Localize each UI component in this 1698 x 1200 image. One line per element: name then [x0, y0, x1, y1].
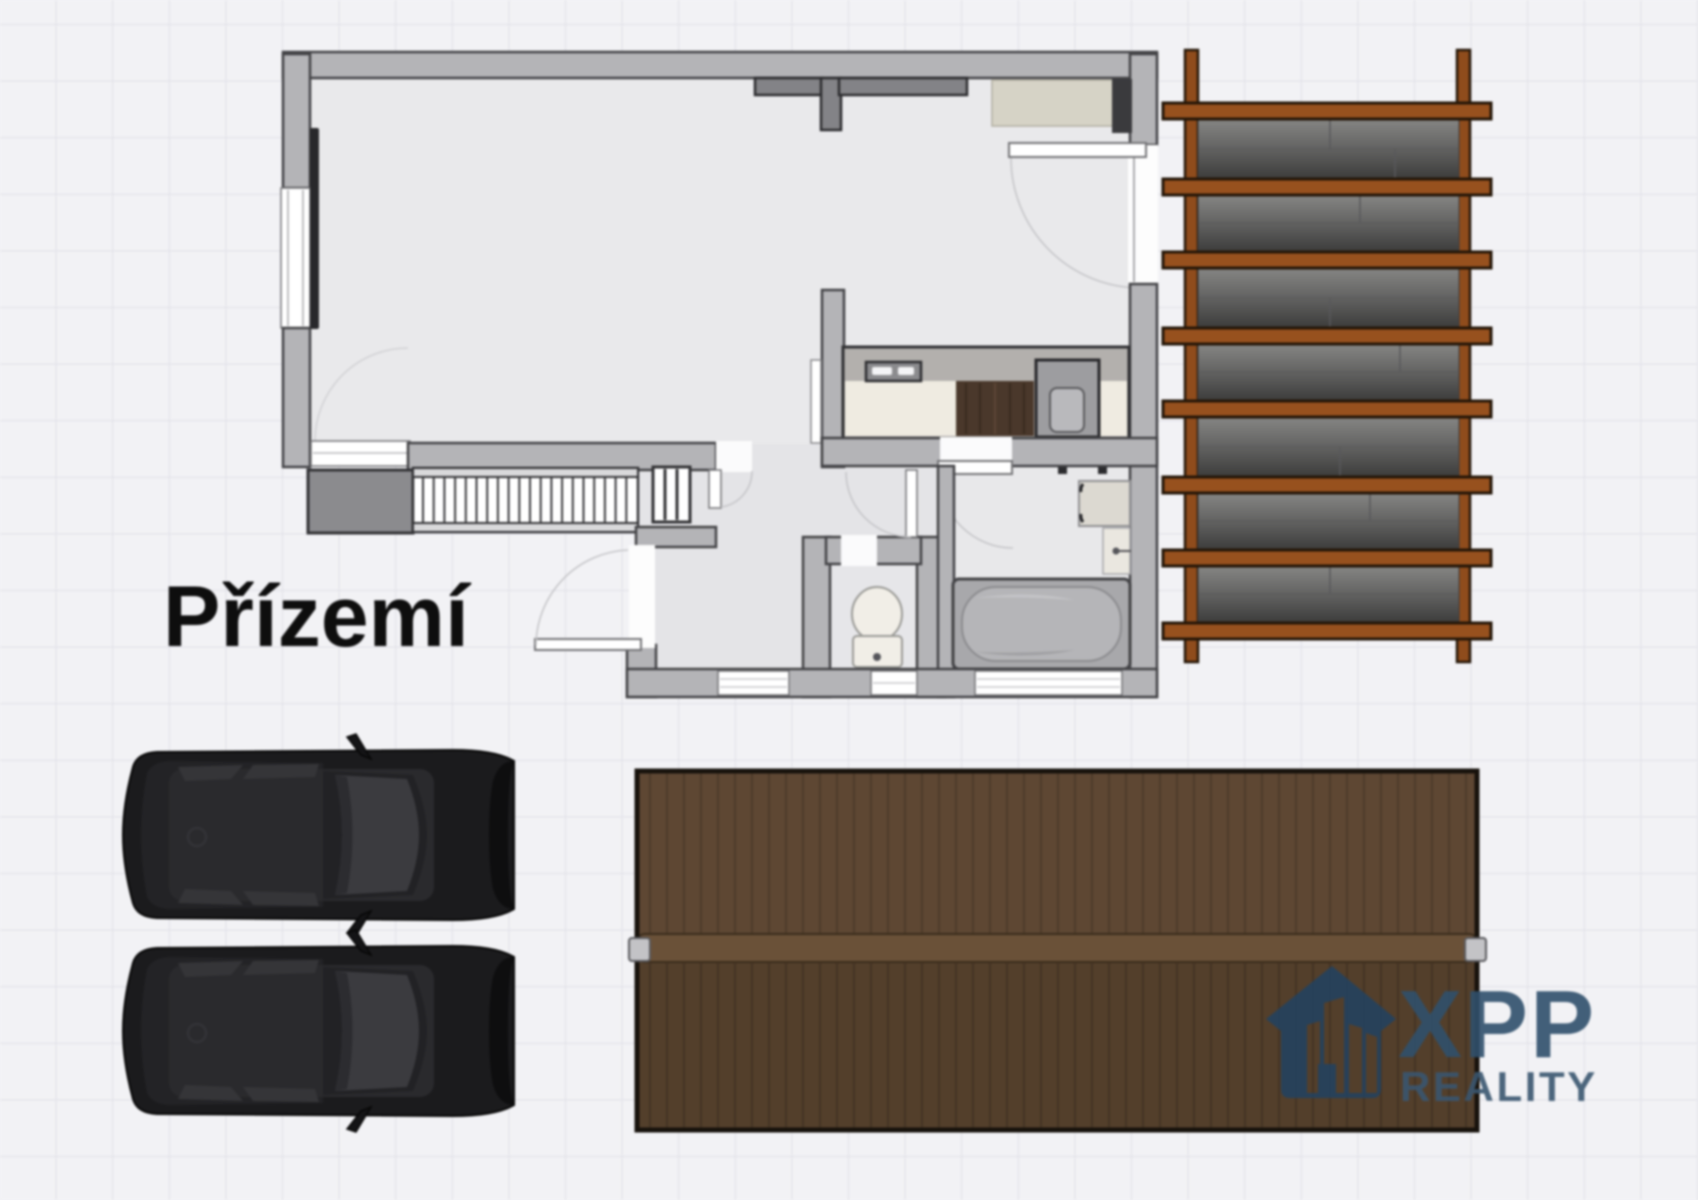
svg-text:REALITY: REALITY: [1400, 1063, 1598, 1110]
svg-text:XPP: XPP: [1398, 971, 1596, 1078]
svg-text:Přízemí: Přízemí: [163, 569, 472, 665]
